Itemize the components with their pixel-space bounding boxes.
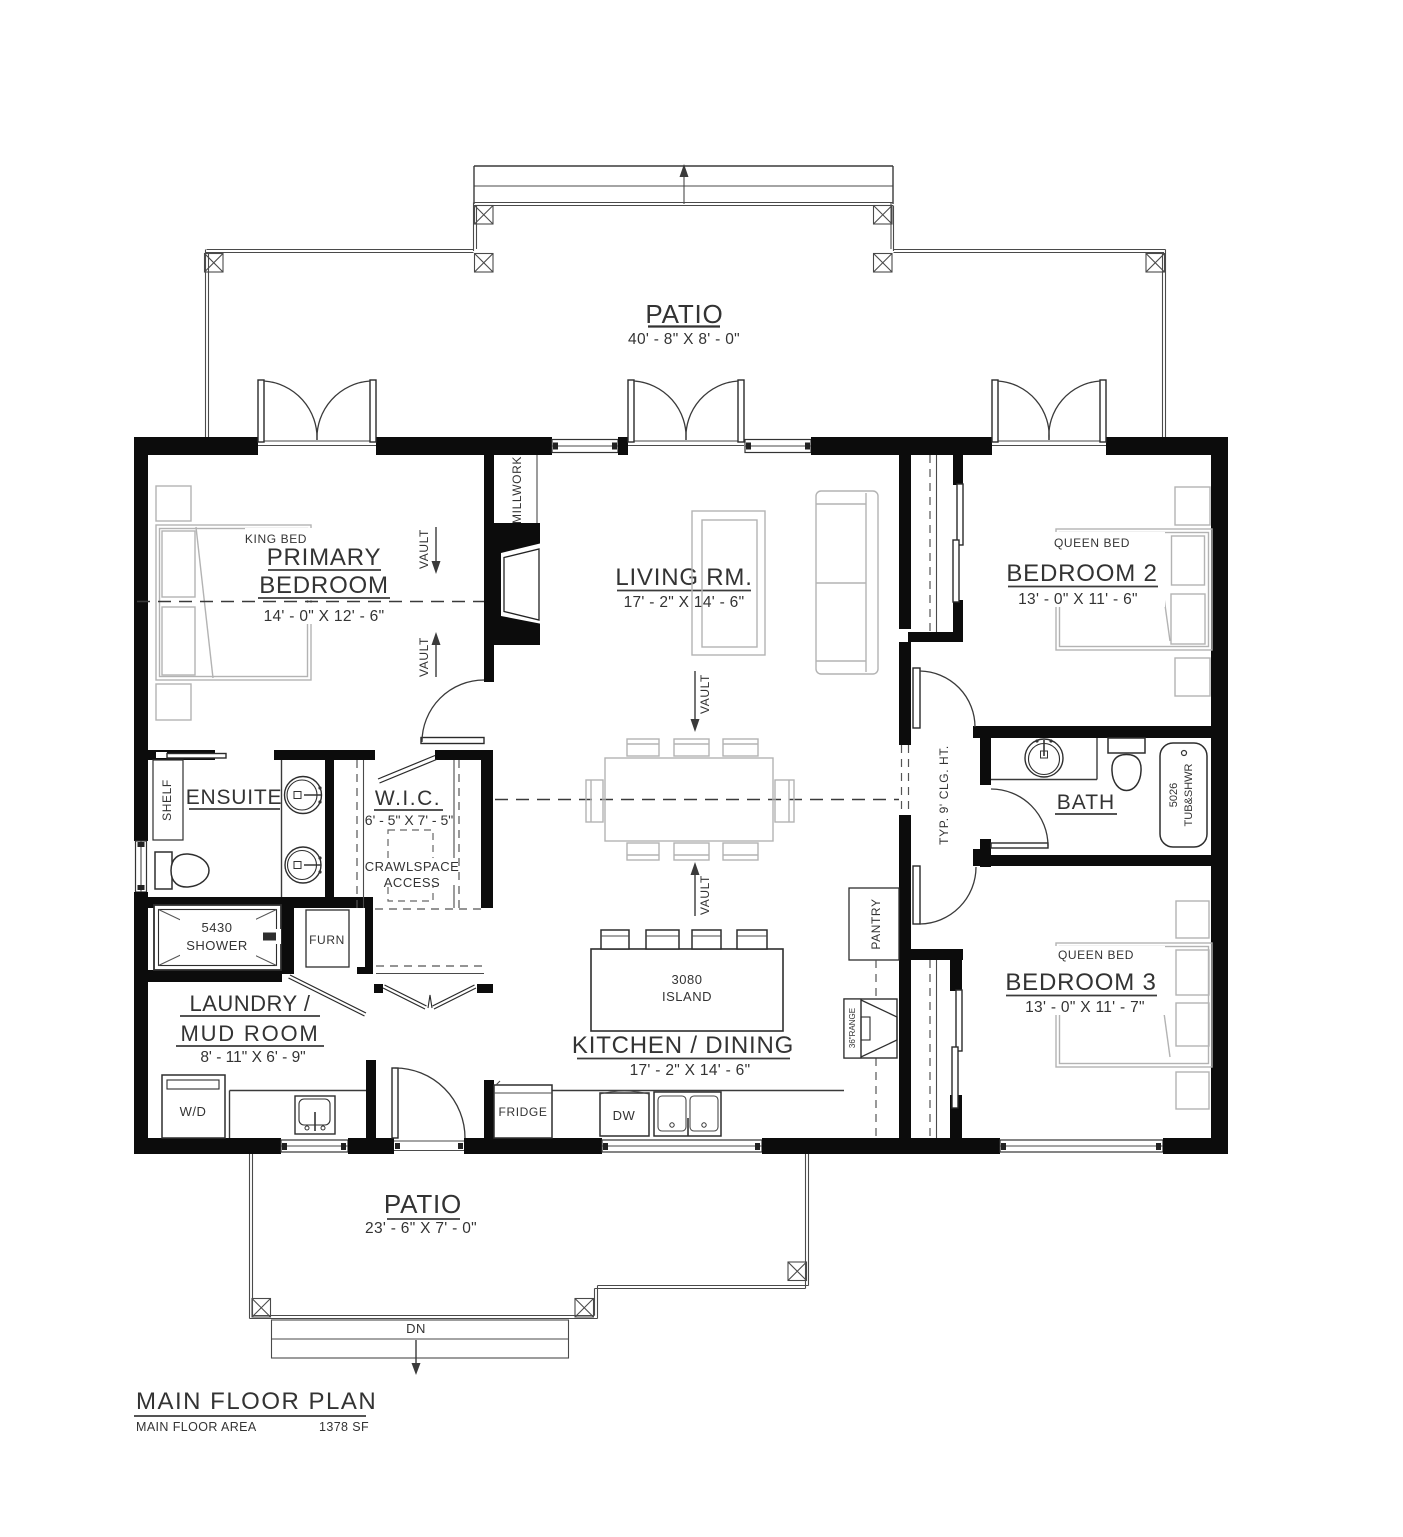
svg-text:SHELF: SHELF [160, 779, 174, 821]
svg-text:VAULT: VAULT [417, 529, 431, 569]
svg-text:PRIMARY: PRIMARY [267, 544, 382, 571]
svg-text:DW: DW [613, 1108, 636, 1123]
svg-text:1378 SF: 1378 SF [319, 1420, 369, 1434]
svg-text:QUEEN BED: QUEEN BED [1054, 536, 1130, 550]
svg-text:PATIO: PATIO [645, 299, 723, 329]
svg-text:TUB&SHWR: TUB&SHWR [1183, 763, 1195, 826]
svg-text:SHOWER: SHOWER [186, 938, 248, 953]
svg-text:14' - 0" X 12' - 6": 14' - 0" X 12' - 6" [264, 608, 385, 625]
svg-text:PATIO: PATIO [384, 1189, 462, 1219]
svg-text:17' - 2" X 14' - 6": 17' - 2" X 14' - 6" [630, 1062, 751, 1079]
svg-text:ENSUITE: ENSUITE [186, 786, 283, 809]
svg-text:MILLWORK: MILLWORK [510, 456, 524, 524]
svg-text:VAULT: VAULT [417, 637, 431, 677]
svg-text:MAIN FLOOR AREA: MAIN FLOOR AREA [136, 1420, 257, 1434]
svg-text:23' - 6" X 7' - 0": 23' - 6" X 7' - 0" [365, 1220, 477, 1237]
svg-text:BEDROOM 2: BEDROOM 2 [1006, 560, 1157, 587]
svg-text:W.I.C.: W.I.C. [375, 787, 441, 810]
svg-text:CRAWLSPACE: CRAWLSPACE [365, 859, 460, 874]
svg-text:5430: 5430 [202, 920, 233, 935]
svg-text:MUD ROOM: MUD ROOM [180, 1021, 319, 1046]
svg-text:LAUNDRY /: LAUNDRY / [189, 991, 310, 1016]
svg-text:36"RANGE: 36"RANGE [848, 1008, 857, 1048]
svg-text:13' - 0" X 11' - 6": 13' - 0" X 11' - 6" [1018, 591, 1138, 608]
svg-text:3080: 3080 [672, 972, 703, 987]
svg-text:ACCESS: ACCESS [384, 875, 440, 890]
svg-text:VAULT: VAULT [698, 875, 712, 915]
svg-text:KITCHEN / DINING: KITCHEN / DINING [572, 1032, 794, 1059]
svg-text:LIVING RM.: LIVING RM. [615, 564, 752, 591]
svg-text:BEDROOM: BEDROOM [259, 572, 389, 599]
svg-text:40' - 8" X 8' - 0": 40' - 8" X 8' - 0" [628, 331, 740, 348]
svg-text:FRIDGE: FRIDGE [499, 1105, 548, 1119]
svg-text:PANTRY: PANTRY [869, 898, 883, 949]
svg-text:TYP. 9' CLG. HT.: TYP. 9' CLG. HT. [937, 745, 951, 845]
svg-text:MAIN FLOOR PLAN: MAIN FLOOR PLAN [136, 1388, 377, 1415]
svg-text:13' - 0" X 11' - 7": 13' - 0" X 11' - 7" [1025, 999, 1145, 1016]
svg-text:FURN: FURN [309, 933, 345, 947]
svg-text:DN: DN [406, 1321, 426, 1336]
svg-text:BEDROOM 3: BEDROOM 3 [1005, 969, 1156, 996]
svg-text:VAULT: VAULT [698, 674, 712, 714]
svg-text:17' - 2" X 14' - 6": 17' - 2" X 14' - 6" [624, 594, 745, 611]
svg-text:6' - 5" X 7' - 5": 6' - 5" X 7' - 5" [365, 812, 453, 828]
svg-text:QUEEN BED: QUEEN BED [1058, 948, 1134, 962]
svg-text:BATH: BATH [1057, 791, 1115, 814]
svg-text:ISLAND: ISLAND [662, 989, 712, 1004]
svg-text:8' - 11" X 6' - 9": 8' - 11" X 6' - 9" [200, 1049, 305, 1066]
svg-text:5026: 5026 [1168, 783, 1180, 807]
svg-text:W/D: W/D [180, 1104, 207, 1119]
